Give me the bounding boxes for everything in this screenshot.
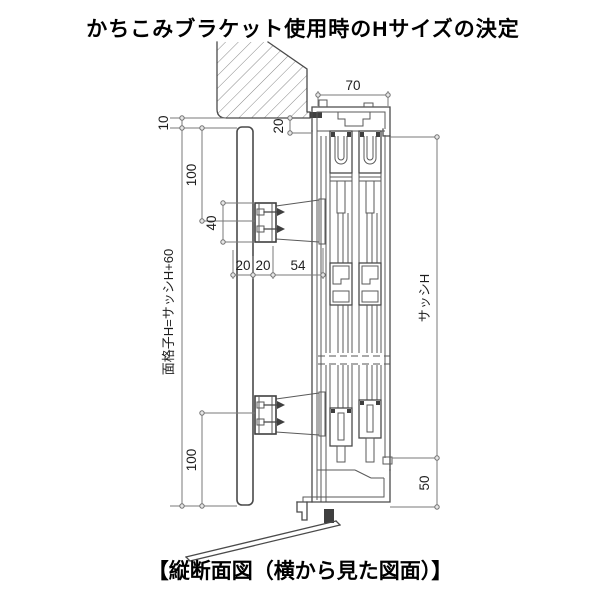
dim-20-top-label: 20 <box>271 118 286 133</box>
anchor-tab-left <box>319 100 327 107</box>
wall-section <box>217 42 322 118</box>
sash-panel-outer <box>359 131 381 462</box>
lower-bracket <box>255 392 325 436</box>
lattice-bar <box>237 127 253 505</box>
dim-70-label: 70 <box>345 78 360 93</box>
sill-anchor-block <box>324 509 334 523</box>
dim-20a-label: 20 <box>235 258 250 273</box>
technical-drawing-page: かちこみブラケット使用時のHサイズの決定 <box>0 0 600 600</box>
dim-100-upper-label: 100 <box>184 164 199 187</box>
lattice-height-label: 面格子H=サッシH+60 <box>161 249 176 375</box>
dim-20b-label: 20 <box>255 258 270 273</box>
dim-sash-height: サッシH 50 <box>390 135 439 509</box>
sash-height-label: サッシH <box>417 274 432 322</box>
drawing-caption: 【縦断面図（横から見た図面）】 <box>148 559 453 583</box>
dim-54-label: 54 <box>290 258 306 273</box>
dim-50-label: 50 <box>417 475 432 490</box>
sill-lip <box>297 502 307 520</box>
dim-10-label: 10 <box>156 115 171 130</box>
sash-panel-inner <box>330 131 352 462</box>
cross-section-diagram: かちこみブラケット使用時のHサイズの決定 <box>0 0 600 600</box>
sash-sill <box>297 457 392 523</box>
dim-head-clearance: 20 <box>271 116 312 135</box>
page-title: かちこみブラケット使用時のHサイズの決定 <box>86 17 520 41</box>
flashing <box>186 521 340 561</box>
upper-bracket <box>255 199 325 244</box>
wall-hatch <box>217 42 310 118</box>
dim-40-label: 40 <box>204 215 219 230</box>
break-lines <box>318 353 390 365</box>
dim-100-lower-label: 100 <box>184 449 199 472</box>
